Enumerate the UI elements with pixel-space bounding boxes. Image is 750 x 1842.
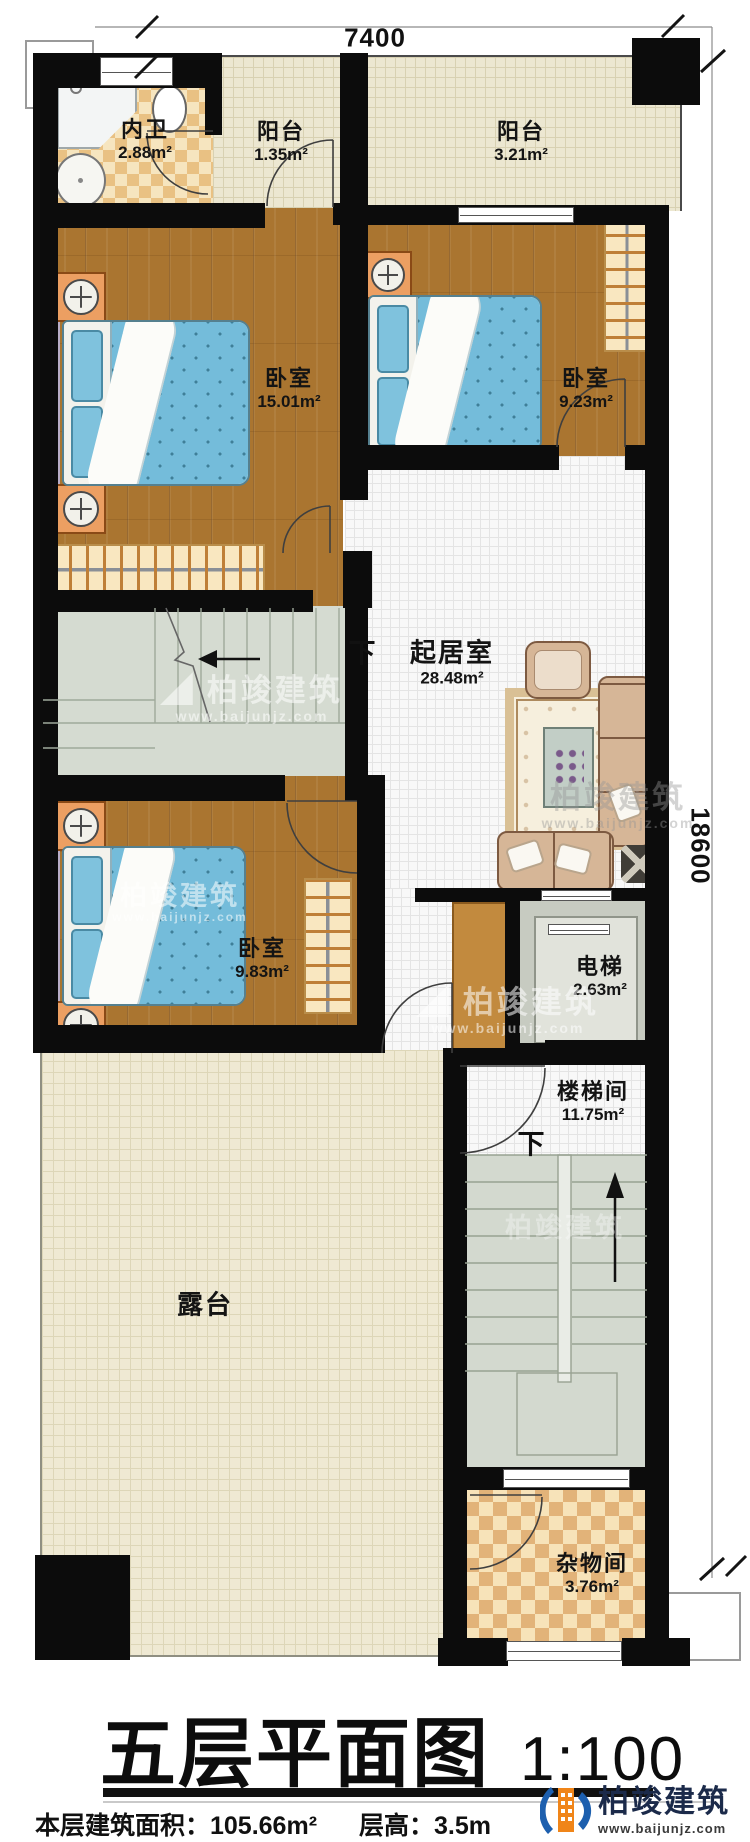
wall: [33, 590, 313, 612]
wall: [443, 1050, 467, 1470]
room-label-balcony2: 阳台 3.21m²: [494, 119, 548, 165]
window: [100, 57, 173, 86]
room-label-terrace: 露台: [177, 1290, 233, 1321]
room-name: 杂物间: [556, 1551, 628, 1577]
room-label-living: 起居室 28.48m²: [410, 638, 494, 689]
wall: [340, 53, 368, 453]
stairs-down-label: 下: [518, 1123, 545, 1162]
window: [506, 1641, 622, 1661]
sofa-icon: [598, 676, 652, 847]
room-label-bathroom: 内卫 2.88m²: [118, 117, 172, 163]
room-label-balcony1: 阳台 1.35m²: [254, 119, 308, 165]
wall: [625, 445, 647, 470]
room-area: 2.63m²: [573, 980, 627, 1000]
dimension-width: 7400: [344, 23, 406, 54]
room-label-stairwell: 楼梯间 11.75m²: [557, 1079, 629, 1125]
wall: [340, 445, 368, 500]
floor-height-text: 层高：3.5m: [359, 1812, 491, 1840]
room-name: 内卫: [118, 117, 172, 143]
room-label-elevator: 电梯 2.63m²: [573, 954, 627, 1000]
wall: [622, 1638, 690, 1666]
wardrobe-icon: [56, 544, 265, 596]
wall: [443, 1467, 467, 1645]
lower-stairs-floor: [465, 1155, 647, 1467]
sink-icon: [55, 153, 106, 208]
room-area: 3.21m²: [494, 145, 548, 165]
armchair-icon: [525, 641, 591, 699]
dimension-height: 18600: [685, 807, 716, 884]
nightstand-icon: [56, 484, 106, 534]
room-name: 楼梯间: [557, 1079, 629, 1105]
wall: [33, 1025, 385, 1053]
room-label-storage: 杂物间 3.76m²: [556, 1551, 628, 1597]
wall: [345, 604, 368, 778]
wall: [205, 53, 222, 135]
wardrobe-icon: [604, 222, 650, 352]
upper-stairs-floor: [43, 606, 345, 778]
room-name: 卧室: [235, 936, 289, 962]
floor-plan-canvas: 内卫 2.88m² 阳台 1.35m² 阳台 3.21m² 卧室 15.01m²…: [0, 0, 750, 1842]
stairs-down-label: 下: [349, 632, 376, 671]
window: [503, 1469, 630, 1488]
company-logo: 柏竣建筑 www.baijunjz.com: [540, 1784, 730, 1838]
room-name: 起居室: [410, 638, 494, 669]
room-name: 阳台: [254, 119, 308, 145]
room-name: 露台: [177, 1290, 233, 1321]
wall: [645, 205, 669, 1665]
bed-icon: [368, 295, 542, 453]
company-url: www.baijunjz.com: [598, 1821, 730, 1836]
company-logo-icon: [540, 1784, 592, 1838]
room-area: 11.75m²: [557, 1105, 629, 1125]
title-text: 五层平面图: [100, 1692, 490, 1802]
room-area: 1.35m²: [254, 145, 308, 165]
floor-stats: 本层建筑面积：105.66m²层高：3.5m: [35, 1806, 491, 1842]
room-name: 卧室: [257, 366, 320, 392]
coffee-table-icon: [543, 727, 594, 808]
room-name: 电梯: [573, 954, 627, 980]
room-area: 28.48m²: [410, 668, 494, 688]
bed-icon: [62, 846, 246, 1006]
tv-cabinet: [452, 902, 509, 1056]
wall: [505, 888, 520, 1043]
wall: [357, 798, 385, 1052]
company-name: 柏竣建筑: [598, 1786, 730, 1817]
elevator-slot: [548, 924, 610, 935]
elevator-door: [541, 890, 612, 901]
wall: [366, 445, 559, 470]
room-area: 9.83m²: [235, 962, 289, 982]
wardrobe-icon: [304, 878, 352, 1014]
room-label-bedroom2: 卧室 9.23m²: [559, 366, 613, 412]
room-area: 2.88m²: [118, 143, 172, 163]
window: [458, 207, 574, 223]
room-area: 9.23m²: [559, 392, 613, 412]
room-label-bedroom3: 卧室 9.83m²: [235, 936, 289, 982]
wall: [33, 203, 265, 228]
room-area: 3.76m²: [556, 1577, 628, 1597]
floor-area-text: 本层建筑面积：105.66m²: [35, 1812, 317, 1840]
room-name: 卧室: [559, 366, 613, 392]
room-name: 阳台: [494, 119, 548, 145]
room-label-bedroom1: 卧室 15.01m²: [257, 366, 320, 412]
nightstand-icon: [56, 801, 106, 851]
wall: [33, 775, 285, 801]
column: [35, 1555, 130, 1660]
nightstand-icon: [56, 272, 106, 322]
room-area: 15.01m²: [257, 392, 320, 412]
column: [632, 38, 700, 105]
nightstand-icon: [364, 251, 412, 299]
wall: [415, 888, 507, 902]
wall: [438, 1638, 508, 1666]
wall: [545, 1040, 647, 1065]
wall: [343, 551, 372, 608]
bed-icon: [62, 320, 250, 486]
